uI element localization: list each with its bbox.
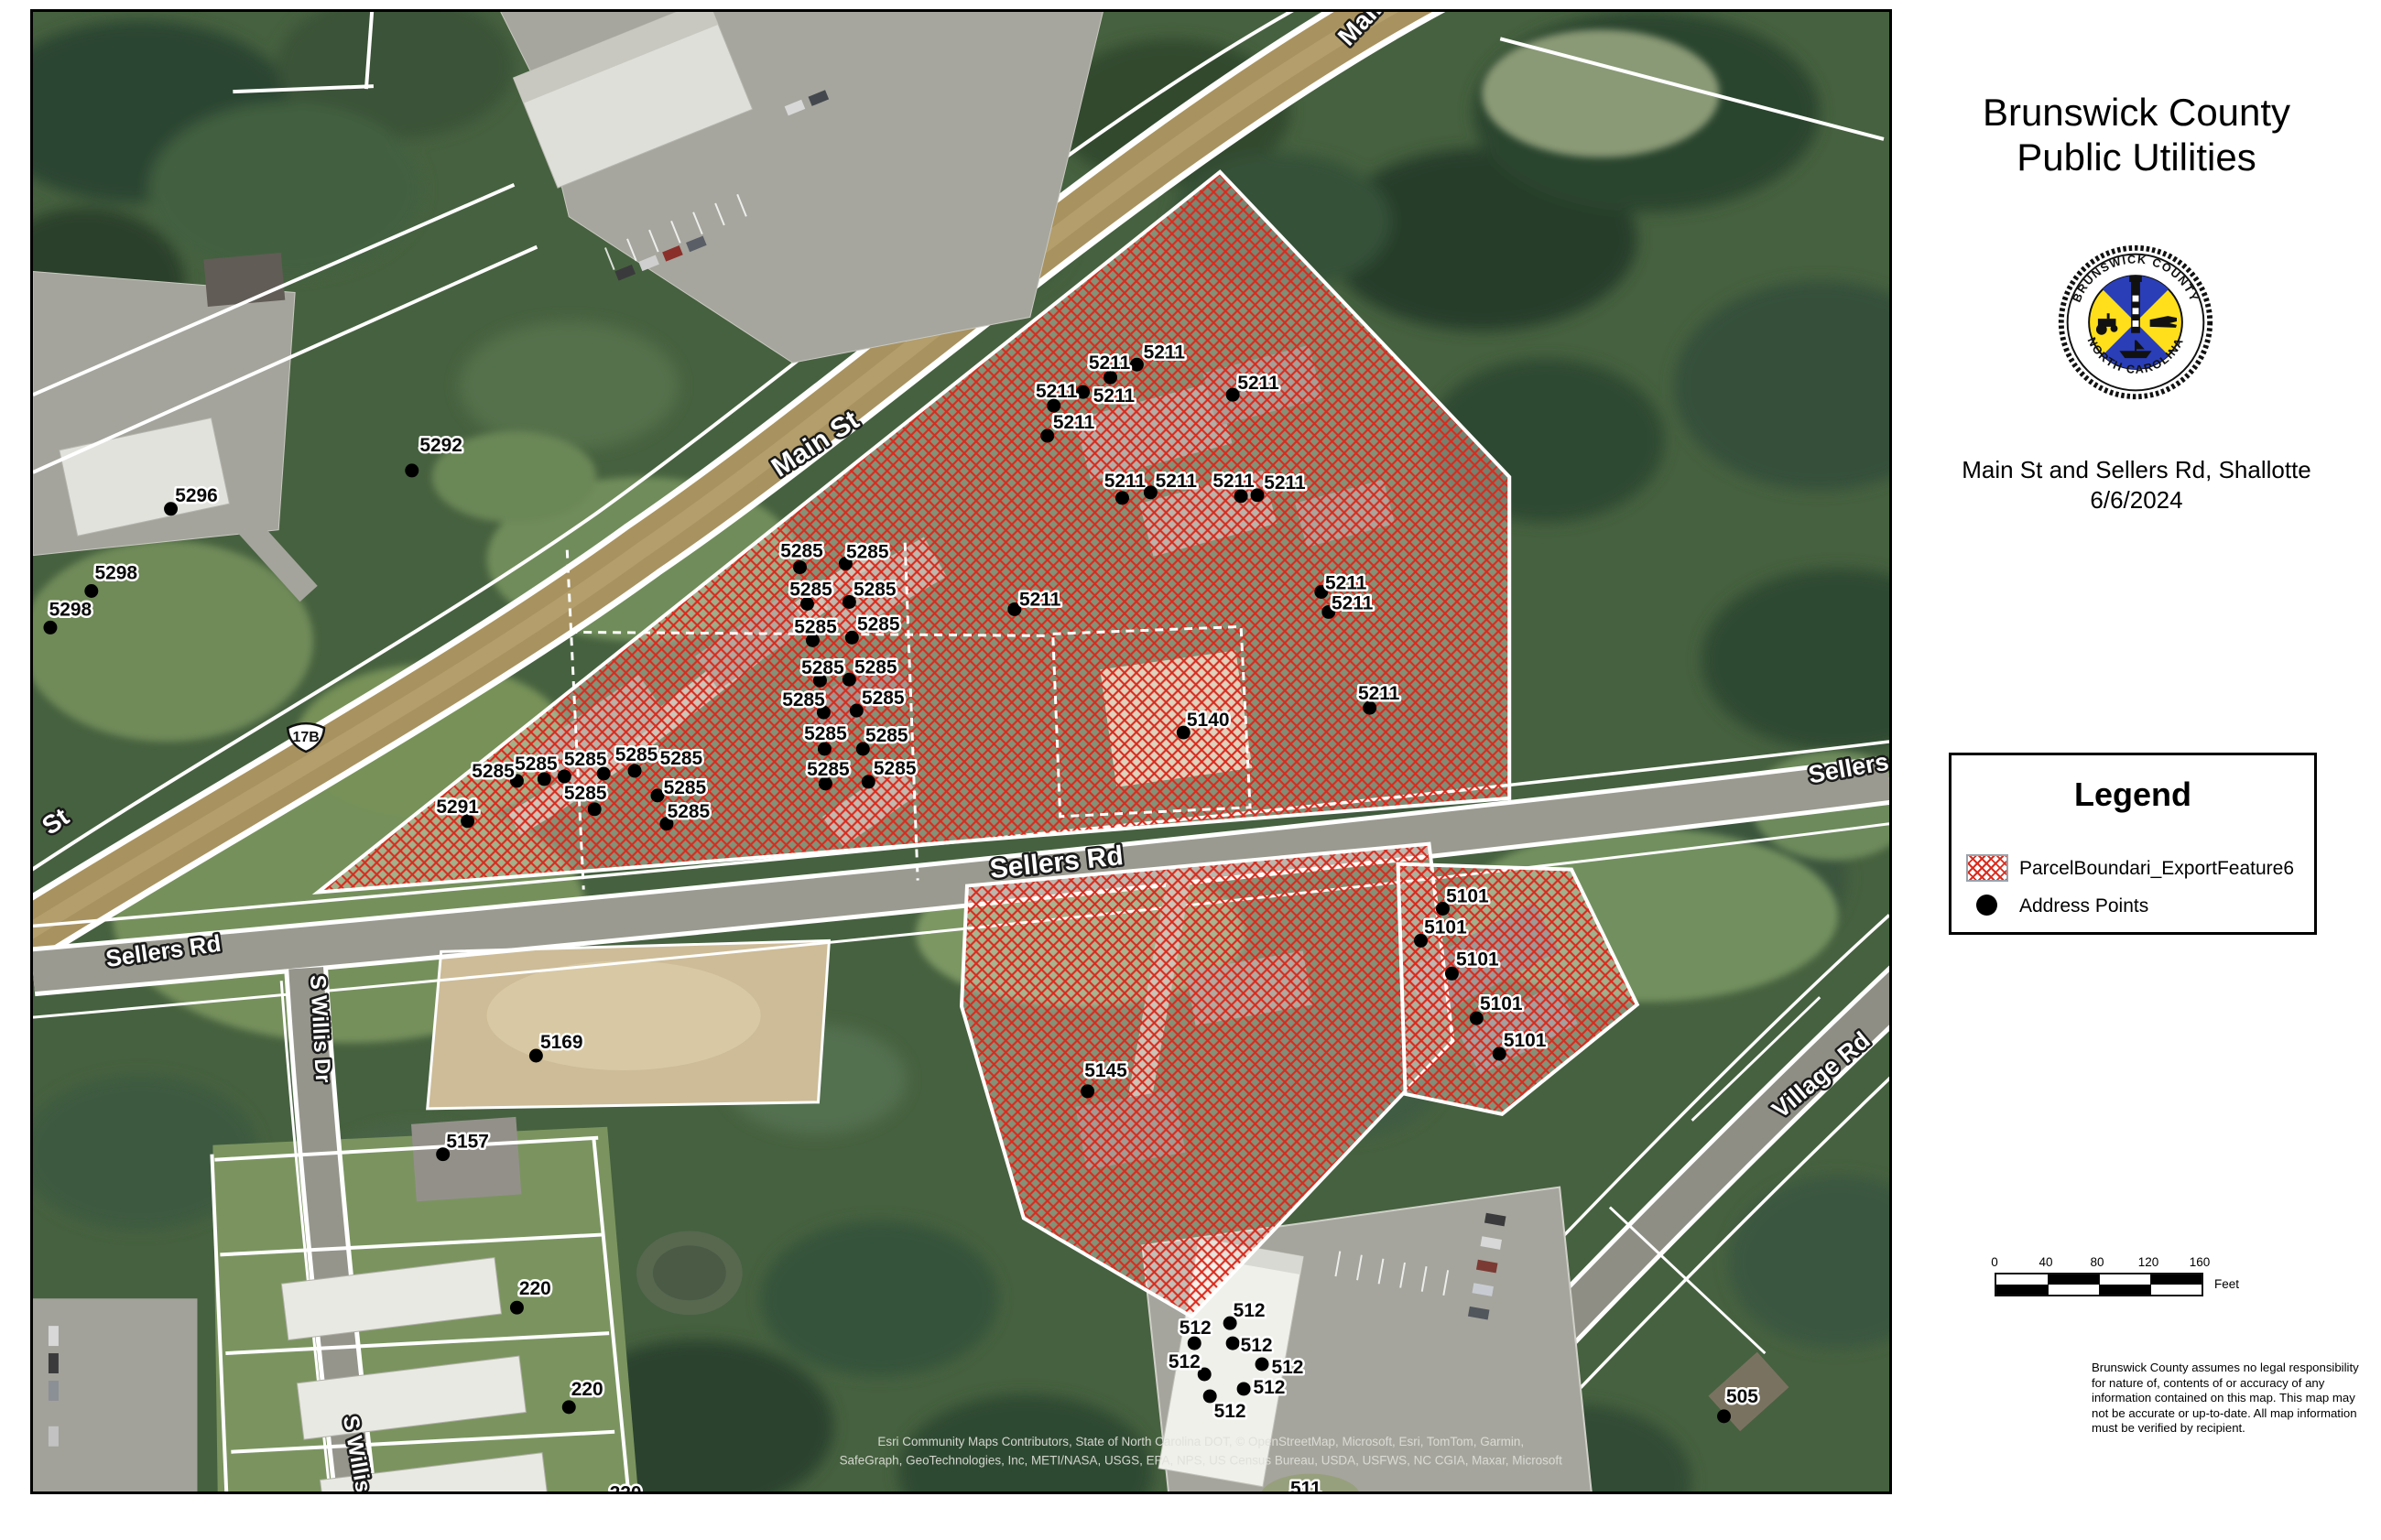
brunswick-county-seal: BRUNSWICK COUNTY NORTH CAROLINA bbox=[2053, 240, 2218, 405]
lighthouse-icon bbox=[2129, 276, 2142, 333]
address-point-label: 5285 bbox=[615, 744, 658, 765]
address-point-label: 220 bbox=[519, 1278, 551, 1299]
disclaimer-text: Brunswick County assumes no legal respon… bbox=[2092, 1361, 2372, 1437]
address-point-label: 512 bbox=[1234, 1300, 1266, 1321]
address-point-dot bbox=[651, 788, 665, 802]
address-point-label: 5211 bbox=[1036, 381, 1078, 402]
address-point-label: 5285 bbox=[862, 688, 905, 709]
title-panel: Brunswick County Public Utilities BRUNSW… bbox=[1892, 0, 2381, 1540]
address-point-label: 5145 bbox=[1084, 1060, 1127, 1081]
address-point-dot bbox=[1047, 399, 1060, 413]
address-point-label: 5285 bbox=[804, 723, 847, 744]
address-point-label: 5211 bbox=[1089, 352, 1131, 374]
address-point-label: 5211 bbox=[1144, 342, 1186, 363]
address-point-label: 5140 bbox=[1187, 710, 1230, 731]
address-point-label: 5211 bbox=[1212, 471, 1255, 492]
route-shield-label: 17B bbox=[292, 730, 319, 745]
address-point-label: 5211 bbox=[1053, 412, 1095, 433]
map-canvas: 17B Esri Community Maps Contributors, St… bbox=[30, 9, 1892, 1494]
legend-title: Legend bbox=[1952, 755, 2314, 814]
address-point-label: 5157 bbox=[446, 1132, 489, 1153]
address-point-swatch bbox=[1976, 895, 1997, 916]
address-point-label: 5285 bbox=[515, 754, 558, 775]
address-point-label: 5211 bbox=[1237, 373, 1279, 394]
address-point-dot bbox=[1115, 491, 1129, 504]
address-point-dot bbox=[562, 1400, 576, 1414]
address-point-dot bbox=[1076, 385, 1090, 399]
address-point-label: 5285 bbox=[664, 777, 707, 798]
address-point-dot bbox=[43, 621, 57, 634]
address-point-label: 5211 bbox=[1019, 589, 1061, 610]
address-point-label: 512 bbox=[1214, 1401, 1246, 1422]
address-point-label: 5101 bbox=[1504, 1030, 1547, 1051]
address-point-label: 5211 bbox=[1332, 592, 1374, 613]
map-location: Main St and Sellers Rd, Shallotte bbox=[1892, 455, 2381, 485]
address-point-label: 5296 bbox=[175, 485, 218, 506]
address-point-dot bbox=[1237, 1382, 1251, 1395]
scale-tick-80: 80 bbox=[2090, 1255, 2104, 1269]
scale-tick-120: 120 bbox=[2138, 1255, 2159, 1269]
address-point-label: 5285 bbox=[782, 689, 825, 710]
address-point-label: 5211 bbox=[1325, 573, 1367, 594]
address-point-dot bbox=[1081, 1084, 1094, 1098]
address-point-label: 5211 bbox=[1156, 471, 1198, 492]
address-point-label: 5211 bbox=[1358, 683, 1400, 704]
address-point-label: 5285 bbox=[472, 761, 515, 782]
address-point-dot bbox=[558, 769, 571, 783]
address-point-label: 5285 bbox=[853, 580, 897, 601]
address-point-label: 5285 bbox=[564, 749, 607, 770]
legend: Legend ParcelBoundari_ExportFeature6 Add… bbox=[1949, 753, 2317, 935]
address-point-label: 220 bbox=[571, 1379, 603, 1400]
address-point-label: 220 bbox=[610, 1483, 642, 1491]
address-point-label: 5285 bbox=[807, 759, 850, 780]
address-point-dot bbox=[1130, 358, 1144, 372]
address-point-label: 5298 bbox=[49, 599, 92, 620]
address-point-label: 5211 bbox=[1264, 472, 1306, 493]
address-point-label: 512 bbox=[1271, 1357, 1303, 1378]
aerial-map: 17B Esri Community Maps Contributors, St… bbox=[33, 12, 1889, 1491]
address-point-label: 5285 bbox=[564, 783, 607, 804]
map-date: 6/6/2024 bbox=[1892, 485, 2381, 515]
address-point-dot bbox=[510, 1301, 524, 1315]
address-point-dot bbox=[597, 766, 611, 780]
address-point-dot bbox=[1256, 1358, 1269, 1372]
address-point-label: 512 bbox=[1241, 1335, 1273, 1356]
address-point-label: 5211 bbox=[1093, 385, 1136, 407]
map-title-line1: Brunswick County bbox=[1892, 90, 2381, 135]
address-point-label: 5292 bbox=[419, 435, 462, 456]
address-point-label: 512 bbox=[1180, 1318, 1212, 1339]
address-point-label: 512 bbox=[1169, 1351, 1201, 1372]
address-point-label: 5285 bbox=[874, 758, 917, 779]
address-point-label: 5285 bbox=[846, 542, 889, 563]
legend-item-address-points: Address Points bbox=[2019, 895, 2148, 917]
parcel-hatch-swatch bbox=[1966, 854, 2008, 882]
address-point-label: 5298 bbox=[94, 563, 137, 584]
address-point-label: 512 bbox=[1254, 1377, 1286, 1398]
address-point-dot bbox=[1226, 1337, 1240, 1350]
address-point-label: 5101 bbox=[1424, 916, 1467, 938]
address-point-label: 5285 bbox=[854, 656, 897, 678]
address-point-label: 5285 bbox=[801, 657, 844, 678]
address-point-label: 511 bbox=[1290, 1479, 1321, 1491]
address-point-dot bbox=[84, 584, 98, 598]
address-point-dot bbox=[1717, 1409, 1731, 1423]
address-point-label: 505 bbox=[1726, 1386, 1758, 1407]
address-point-label: 5285 bbox=[660, 748, 703, 769]
address-point-label: 5285 bbox=[865, 725, 908, 746]
address-point-label: 5101 bbox=[1456, 949, 1499, 970]
map-title-line2: Public Utilities bbox=[1892, 135, 2381, 179]
address-point-label: 5285 bbox=[668, 801, 711, 822]
address-point-dot bbox=[1251, 488, 1265, 502]
address-point-label: 5285 bbox=[857, 613, 900, 634]
map-export-page: { "panel": { "title_line1": "Brunswick C… bbox=[0, 0, 2381, 1540]
address-point-label: 5101 bbox=[1446, 886, 1489, 907]
address-point-label: 5285 bbox=[780, 541, 823, 562]
map-subtitle: Main St and Sellers Rd, Shallotte 6/6/20… bbox=[1892, 455, 2381, 515]
scale-tick-40: 40 bbox=[2039, 1255, 2052, 1269]
address-point-dot bbox=[793, 560, 807, 574]
address-point-label: 5169 bbox=[540, 1032, 583, 1053]
scale-tick-0: 0 bbox=[1991, 1255, 1998, 1269]
scale-bar-graphic bbox=[1995, 1273, 2203, 1296]
scale-tick-160: 160 bbox=[2190, 1255, 2211, 1269]
map-title: Brunswick County Public Utilities bbox=[1892, 90, 2381, 179]
attribution-line-1: Esri Community Maps Contributors, State … bbox=[877, 1435, 1524, 1448]
address-point-label: 5285 bbox=[794, 616, 837, 637]
address-point-label: 5211 bbox=[1104, 471, 1147, 492]
scale-unit: Feet bbox=[2214, 1277, 2239, 1291]
address-point-label: 5291 bbox=[436, 797, 479, 818]
address-point-dot bbox=[405, 463, 419, 477]
address-point-label: 5101 bbox=[1480, 993, 1523, 1014]
attribution-line-2: SafeGraph, GeoTechnologies, Inc, METI/NA… bbox=[840, 1454, 1563, 1468]
address-point-dot bbox=[628, 764, 642, 777]
scale-bar: 0 40 80 120 160 Feet bbox=[1995, 1255, 2269, 1301]
legend-item-parcel-boundary: ParcelBoundari_ExportFeature6 bbox=[2019, 858, 2294, 880]
address-point-label: 5285 bbox=[789, 580, 832, 601]
address-point-dot bbox=[588, 802, 602, 816]
